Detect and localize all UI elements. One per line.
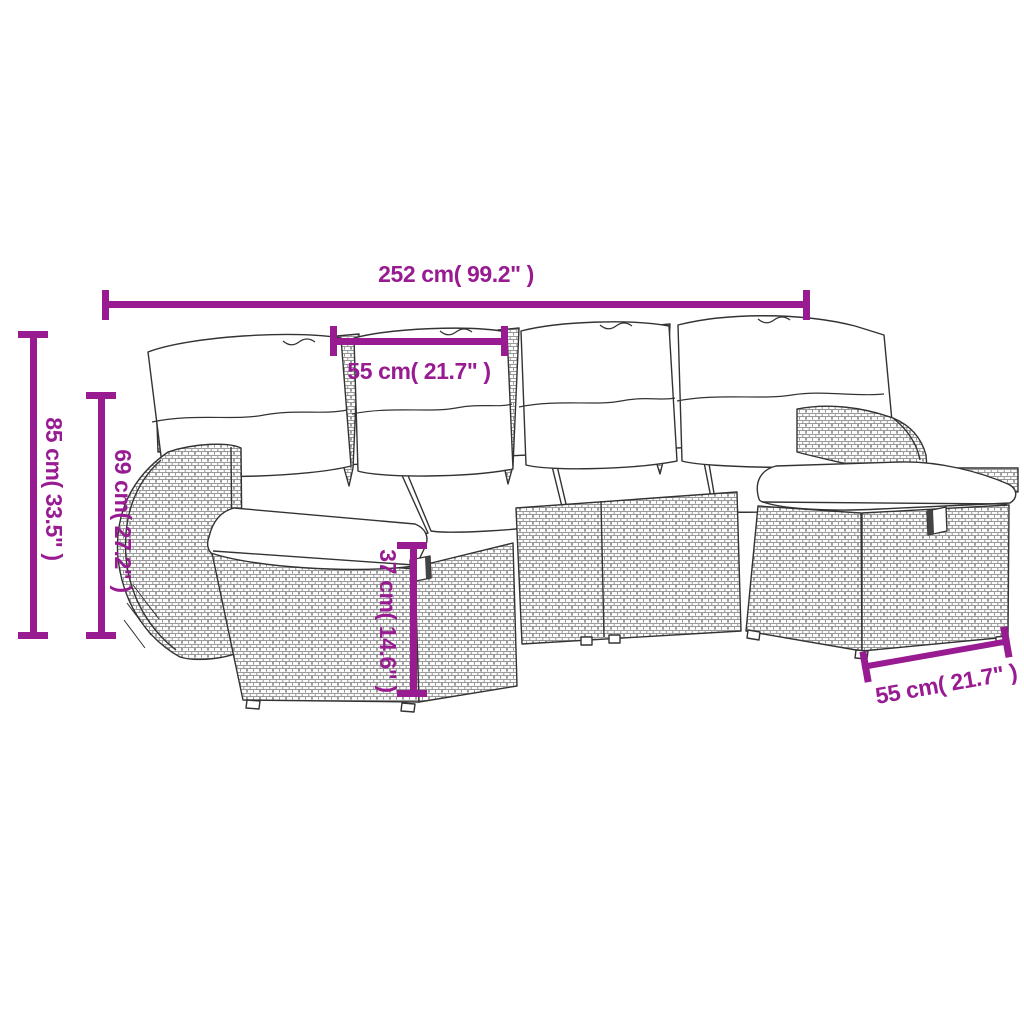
dim-tick-start — [397, 542, 427, 549]
back-cushion — [521, 322, 677, 469]
sofa-set-line-drawing — [0, 0, 1024, 1024]
dim-tick-start — [102, 290, 109, 320]
front-left-ottoman — [208, 508, 517, 712]
product-dimension-diagram: 252 cm( 99.2" ) 55 cm( 21.7" ) 85 cm( 33… — [0, 0, 1024, 1024]
back-cushions — [148, 316, 893, 477]
dim-line — [105, 301, 807, 308]
front-right-ottoman — [746, 462, 1016, 659]
back-cushion — [354, 328, 513, 476]
dim-line — [333, 338, 505, 345]
dim-label: 37 cm( 14.6" ) — [375, 549, 401, 692]
dim-label: 252 cm( 99.2" ) — [378, 261, 534, 287]
dim-label: 55 cm( 21.7" ) — [347, 358, 490, 384]
dim-tick-end — [803, 290, 810, 320]
dim-tick-start — [330, 326, 337, 356]
center-base — [516, 492, 741, 645]
dim-tick-start — [86, 392, 116, 399]
dim-tick-end — [501, 326, 508, 356]
dim-line — [30, 335, 37, 638]
dim-tick-end — [18, 632, 48, 639]
dim-tick-start — [18, 331, 48, 338]
dim-line — [98, 395, 105, 638]
dim-tick-end — [86, 632, 116, 639]
dim-line — [410, 546, 417, 696]
dim-label: 85 cm( 33.5" ) — [41, 417, 67, 560]
dim-label: 69 cm( 27.2" ) — [110, 449, 136, 592]
dim-tick-end — [397, 690, 427, 697]
